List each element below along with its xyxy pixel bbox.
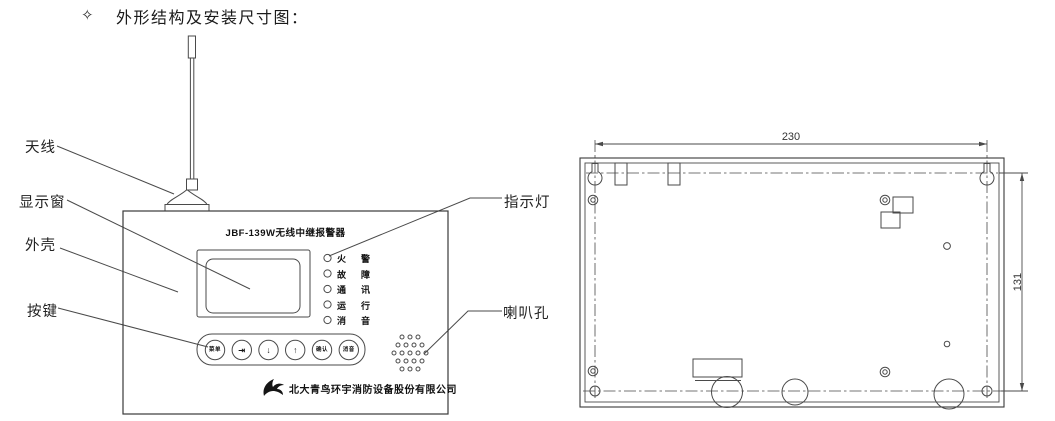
callout-antenna: 天线: [25, 136, 56, 157]
callout-housing: 外壳: [25, 234, 56, 255]
top-slot-1: [615, 163, 627, 185]
screw-bosses: [588, 195, 890, 377]
section-bullet-icon: ✧: [81, 6, 94, 25]
antenna-neck: [187, 179, 198, 190]
dim-width-label: 230: [782, 131, 800, 143]
plate-outer-edge: [580, 158, 1004, 407]
antenna-cone: [167, 190, 207, 205]
brand-bird-icon: [263, 379, 284, 396]
antenna: [165, 36, 209, 211]
top-slot-2: [668, 163, 680, 185]
key-label-up: ↑: [284, 345, 306, 355]
antenna-tip: [188, 36, 195, 58]
small-hole-1: [944, 243, 951, 250]
small-hole-2: [944, 341, 950, 347]
led-fault: [324, 270, 331, 277]
cable-hole-1: [712, 377, 743, 408]
dim-height-label: 131: [1012, 273, 1024, 291]
indicator-label-fire: 火警: [337, 252, 385, 265]
housing-leader-line: [60, 248, 178, 292]
step-cutout-lower: [881, 212, 900, 228]
antenna-base: [165, 205, 209, 212]
brand-name: 北大青鸟环宇消防设备股份有限公司: [289, 381, 457, 396]
mounting-plate: [580, 158, 1004, 407]
display-window: [197, 250, 310, 317]
bottom-cutout: [693, 359, 742, 377]
cable-hole-3: [934, 379, 964, 409]
indicator-label-mute: 消音: [337, 314, 385, 327]
keys-leader-line: [58, 308, 208, 347]
plate-inner-edge: [585, 163, 999, 402]
callout-indicator-light: 指示灯: [504, 191, 551, 212]
device-model-title: JBF-139W无线中继报警器: [123, 225, 448, 239]
indicator-label-fault: 故障: [337, 268, 385, 281]
callout-display-window: 显示窗: [19, 191, 66, 212]
antenna-rod: [190, 58, 193, 179]
key-label-enter: ⇥: [231, 345, 253, 355]
led-fire: [324, 254, 331, 261]
speaker-leader-line: [424, 311, 502, 354]
centerlines: [583, 140, 1001, 399]
led-comm: [324, 285, 331, 292]
display-inner-frame: [206, 259, 300, 313]
callout-keys: 按键: [27, 300, 58, 321]
indicator-leds: [324, 254, 331, 323]
callout-speaker-hole: 喇叭孔: [503, 302, 550, 323]
key-label-down: ↓: [258, 345, 280, 355]
key-label-confirm: 确认: [311, 345, 333, 355]
led-mute: [324, 316, 331, 323]
display-outer-frame: [197, 250, 310, 317]
rear-diagram: [580, 140, 1028, 409]
indicator-label-comm: 通讯: [337, 283, 385, 296]
step-cutout-upper: [893, 197, 913, 213]
speaker-grill: [392, 335, 428, 371]
display-leader-line: [67, 200, 250, 289]
cable-hole-2: [782, 379, 808, 405]
antenna-leader-line: [57, 146, 174, 194]
indicator-label-run: 运行: [337, 299, 385, 312]
key-label-menu: 菜单: [204, 345, 226, 355]
section-title: 外形结构及安装尺寸图：: [116, 4, 309, 28]
key-label-silence: 消音: [338, 345, 360, 355]
led-run: [324, 301, 331, 308]
manual-figure-page: 230 131 ✧ 外形结构及安装尺寸图： 天线 显示窗 外壳 按键 指示灯 喇…: [0, 0, 1055, 421]
